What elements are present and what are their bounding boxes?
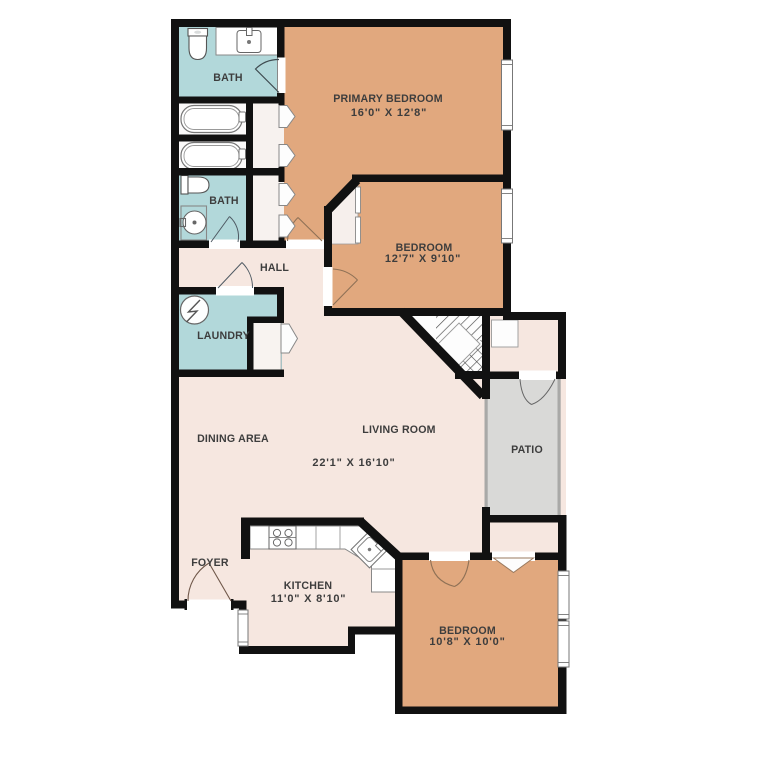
svg-text:LAUNDRY: LAUNDRY <box>197 330 250 342</box>
svg-text:PATIO: PATIO <box>511 444 543 456</box>
svg-text:DINING AREA: DINING AREA <box>197 433 269 445</box>
svg-text:11'0" X 8'10": 11'0" X 8'10" <box>271 593 347 605</box>
svg-text:BATH: BATH <box>213 72 242 84</box>
svg-text:22'1" X 16'10": 22'1" X 16'10" <box>312 457 395 469</box>
svg-text:LIVING ROOM: LIVING ROOM <box>362 424 435 436</box>
svg-text:PRIMARY BEDROOM: PRIMARY BEDROOM <box>333 93 443 105</box>
svg-text:10'8" X 10'0": 10'8" X 10'0" <box>429 636 505 648</box>
svg-text:16'0" X 12'8": 16'0" X 12'8" <box>351 107 427 119</box>
svg-text:FOYER: FOYER <box>191 557 229 569</box>
svg-text:KITCHEN: KITCHEN <box>284 580 332 592</box>
svg-text:12'7" X 9'10": 12'7" X 9'10" <box>385 253 461 265</box>
svg-text:BATH: BATH <box>209 195 238 207</box>
svg-text:HALL: HALL <box>260 262 289 274</box>
